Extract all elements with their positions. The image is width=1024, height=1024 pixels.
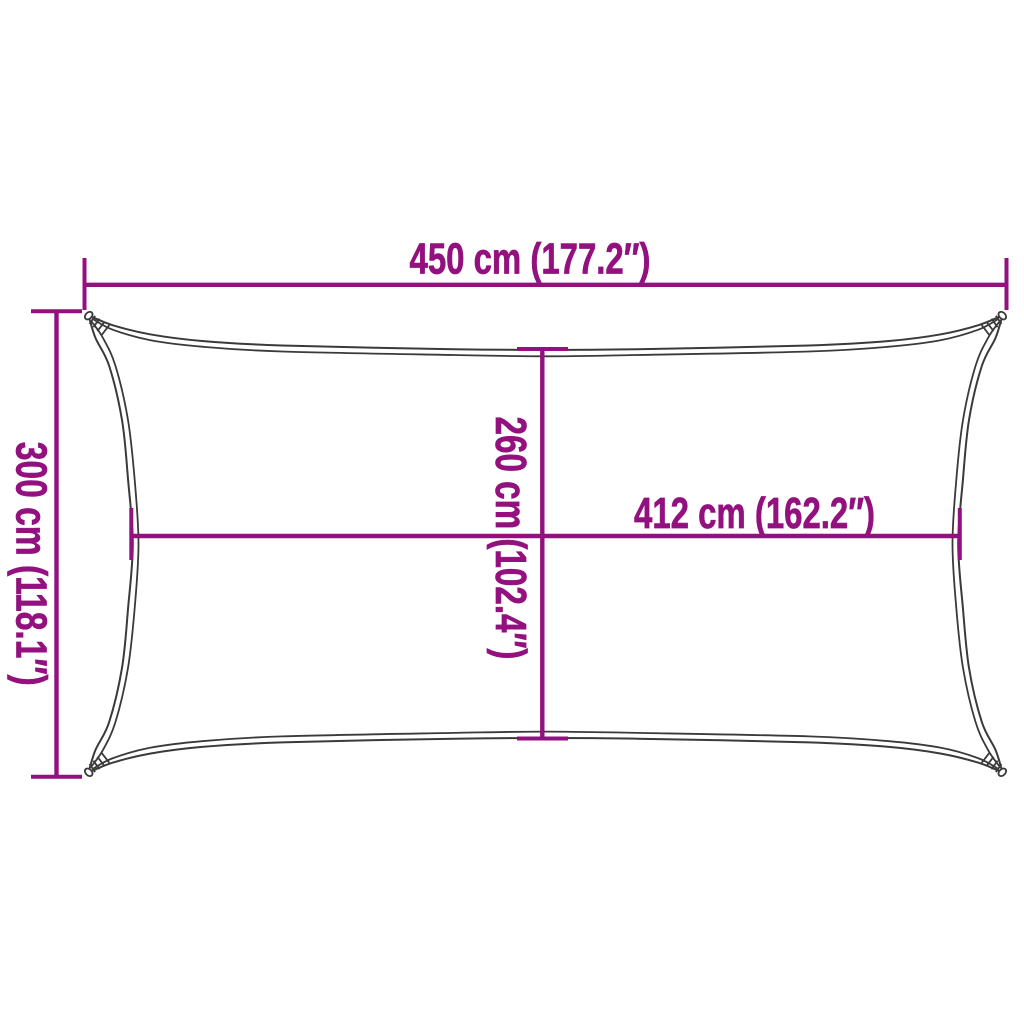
svg-text:450 cm (177.2″): 450 cm (177.2″) — [410, 235, 651, 284]
svg-text:300 cm (118.1″): 300 cm (118.1″) — [7, 442, 56, 686]
svg-text:412 cm (162.2″): 412 cm (162.2″) — [634, 489, 875, 538]
